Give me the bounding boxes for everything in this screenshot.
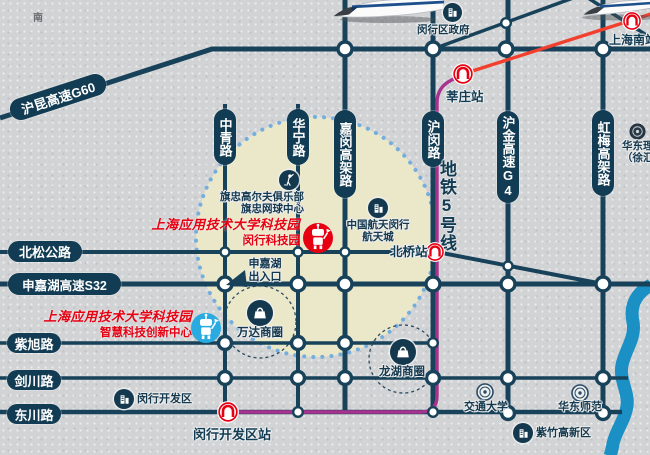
poi-aerospace-line1: 中国航天闵行 — [338, 219, 418, 231]
poi-golf-club-line2: 旗忠网球中心 — [208, 203, 304, 215]
station-label-shanghai-south: 上海南站 — [609, 31, 650, 48]
road-pill-s32: 申嘉湖高速S32 — [8, 273, 121, 295]
university-seal-icon — [629, 123, 646, 140]
road-pill-jianchuan: 剑川路 — [7, 370, 61, 390]
poi-wanda: 万达商圈 — [237, 327, 283, 341]
tech-park-minhang-label: 上海应用技术大学科技园 闵行科技园 — [140, 219, 300, 247]
poi-minhang-government: 闵行区政府 — [417, 24, 470, 36]
station-label-minhang-dev-zone: 闵行开发区站 — [193, 424, 271, 443]
university-seal-icon — [571, 384, 589, 402]
map-canvas: 南 沪昆高速G60 中青路 华宁路 嘉闵高架路 沪闵路 沪金高速G4 虹梅高架路… — [0, 0, 650, 455]
tech-park-minhang-sub: 闵行科技园 — [140, 235, 300, 247]
building-icon — [114, 389, 134, 409]
university-seal-icon — [476, 383, 494, 401]
poi-aerospace: 中国航天闵行 航天城 — [338, 219, 418, 244]
building-icon — [443, 3, 462, 22]
tech-park-title: 上海应用技术大学科技园 — [140, 219, 300, 233]
poi-longhu: 龙湖商圈 — [379, 366, 425, 380]
compass-south-label: 南 — [33, 9, 43, 24]
road-pill-humin: 沪闵路 — [422, 111, 444, 167]
road-pill-jiamin: 嘉闵高架路 — [334, 110, 356, 198]
poi-golf-club: 旗忠高尔夫俱乐部 旗忠网球中心 — [208, 191, 304, 216]
poi-expressway-exit: 申嘉湖 出入口 — [244, 258, 286, 284]
golf-icon — [279, 170, 299, 190]
poi-ecust-line2: （徐汇校区） — [622, 152, 650, 164]
station-label-beiqiao: 北桥站 — [390, 241, 428, 260]
metro-logo-shanghai-south — [622, 11, 642, 31]
building-icon — [513, 423, 533, 443]
tech-park-smart-label: 上海应用技术大学科技园 智慧科技创新中心 — [32, 311, 192, 339]
road-pill-dongchuan: 东川路 — [7, 404, 61, 424]
poi-expressway-exit-line2: 出入口 — [244, 271, 286, 284]
building-icon — [368, 198, 388, 218]
poi-minhang-dev-area: 闵行开发区 — [137, 393, 192, 406]
metro-line5-label: 地铁5号线 — [438, 160, 455, 252]
tech-park-minhang-mascot-icon — [303, 223, 333, 253]
metro-logo-minhang-dev-zone — [217, 401, 239, 423]
poi-golf-club-line1: 旗忠高尔夫俱乐部 — [208, 191, 304, 203]
river-path — [610, 285, 650, 455]
road-pill-huaning: 华宁路 — [287, 109, 309, 165]
shopping-bag-icon — [247, 300, 273, 326]
road-pill-beisong: 北松公路 — [8, 241, 82, 262]
road-pill-hujin-g4: 沪金高速G4 — [497, 111, 519, 203]
shopping-bag-icon — [390, 339, 416, 365]
train-illustration-left — [334, 0, 444, 23]
poi-zizhu-hitech: 紫竹高新区 — [536, 427, 591, 440]
tech-park-smart-sub: 智慧科技创新中心 — [32, 327, 192, 339]
road-pill-zhongqing: 中青路 — [214, 109, 236, 165]
poi-ecust-line1: 华东理工 — [622, 140, 650, 152]
station-label-xinzhuang: 莘庄站 — [446, 86, 484, 105]
metro-logo-xinzhuang — [452, 63, 474, 85]
poi-east-china-normal: 华东师范 — [558, 401, 602, 414]
road-pill-hongmei: 虹梅高架路 — [592, 110, 614, 196]
poi-aerospace-line2: 航天城 — [338, 231, 418, 243]
metro-logo-beiqiao — [425, 242, 445, 262]
tech-park-smart-mascot-icon — [191, 313, 221, 343]
poi-expressway-exit-line1: 申嘉湖 — [244, 258, 286, 271]
tech-park-title-2: 上海应用技术大学科技园 — [32, 311, 192, 325]
poi-ecust: 华东理工 （徐汇校区） — [622, 140, 650, 165]
poi-jiaotong-university: 交通大学 — [464, 401, 508, 414]
